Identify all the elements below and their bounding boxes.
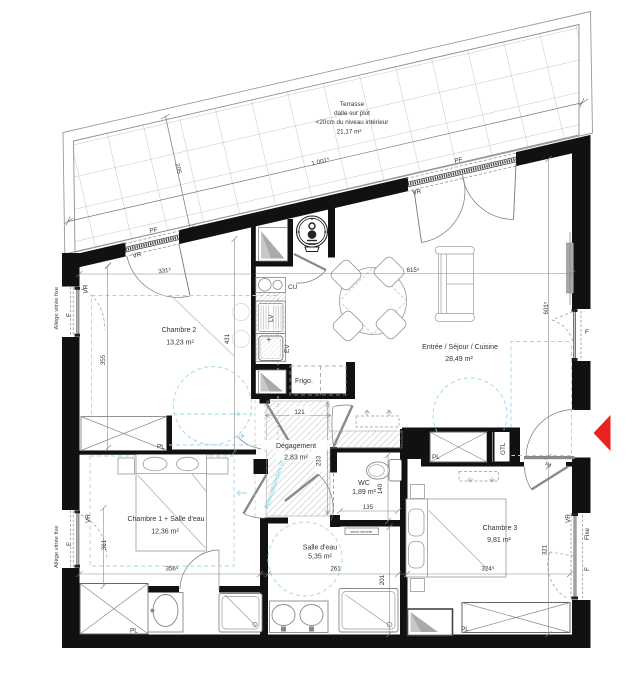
svg-text:Chambre 1 + Salle d'eau: Chambre 1 + Salle d'eau [127, 516, 204, 523]
svg-text:PL: PL [432, 454, 440, 461]
svg-text:356⁵: 356⁵ [166, 566, 179, 573]
svg-text:LV: LV [268, 314, 275, 322]
svg-text:28,49 m²: 28,49 m² [445, 356, 473, 363]
svg-text:VR: VR [565, 514, 572, 523]
svg-text:dalle sur plot: dalle sur plot [334, 110, 370, 117]
svg-text:Allège vitrée fixe: Allège vitrée fixe [54, 287, 60, 330]
svg-text:321: 321 [542, 544, 549, 555]
svg-text:Chambre 2: Chambre 2 [162, 327, 197, 334]
svg-text:<20cm du niveau intérieur: <20cm du niveau intérieur [316, 119, 389, 126]
svg-text:CU: CU [288, 284, 298, 291]
svg-text:Frigo.: Frigo. [295, 378, 313, 385]
svg-text:F: F [584, 567, 591, 571]
svg-text:431: 431 [224, 333, 231, 344]
svg-text:Fixe: Fixe [584, 527, 591, 540]
svg-text:201: 201 [379, 574, 386, 585]
svg-text:615⁵: 615⁵ [407, 267, 420, 274]
svg-text:VR: VR [83, 284, 90, 293]
svg-text:Salle d'eau: Salle d'eau [303, 545, 338, 552]
svg-text:F: F [66, 313, 73, 317]
svg-text:PL: PL [461, 626, 469, 633]
svg-text:2,83 m²: 2,83 m² [284, 455, 308, 462]
svg-text:VR: VR [85, 514, 92, 523]
svg-text:WC: WC [358, 480, 370, 487]
svg-text:12,36 m²: 12,36 m² [151, 529, 179, 536]
svg-text:5,35 m²: 5,35 m² [308, 554, 332, 561]
svg-text:PL: PL [130, 628, 138, 635]
svg-text:EV: EV [284, 344, 291, 353]
svg-text:GTL: GTL [500, 442, 507, 455]
svg-text:261: 261 [330, 566, 341, 573]
svg-text:Dégagement: Dégagement [276, 443, 316, 450]
svg-text:21,17 m²: 21,17 m² [337, 129, 362, 136]
svg-text:Terrasse: Terrasse [340, 101, 365, 108]
svg-text:F: F [66, 542, 73, 546]
svg-text:361: 361 [101, 539, 108, 550]
svg-text:121: 121 [294, 409, 305, 416]
svg-text:355: 355 [100, 354, 107, 365]
svg-text:233: 233 [316, 455, 323, 466]
svg-text:Chambre 3: Chambre 3 [483, 525, 518, 532]
svg-text:sèche-serviette: sèche-serviette [351, 530, 373, 534]
svg-text:1,89 m²: 1,89 m² [352, 489, 376, 496]
svg-text:9,81 m²: 9,81 m² [487, 537, 511, 544]
svg-text:601⁵: 601⁵ [543, 301, 550, 314]
svg-text:Entrée / Séjour / Cuisine: Entrée / Séjour / Cuisine [422, 344, 498, 351]
svg-text:Allège vitrée fixe: Allège vitrée fixe [54, 525, 60, 568]
svg-text:135: 135 [363, 504, 374, 511]
svg-text:F: F [585, 329, 589, 336]
svg-text:13,23 m²: 13,23 m² [166, 340, 194, 347]
svg-text:PL: PL [157, 444, 165, 451]
svg-text:140: 140 [377, 483, 384, 494]
svg-text:324⁵: 324⁵ [482, 566, 495, 573]
